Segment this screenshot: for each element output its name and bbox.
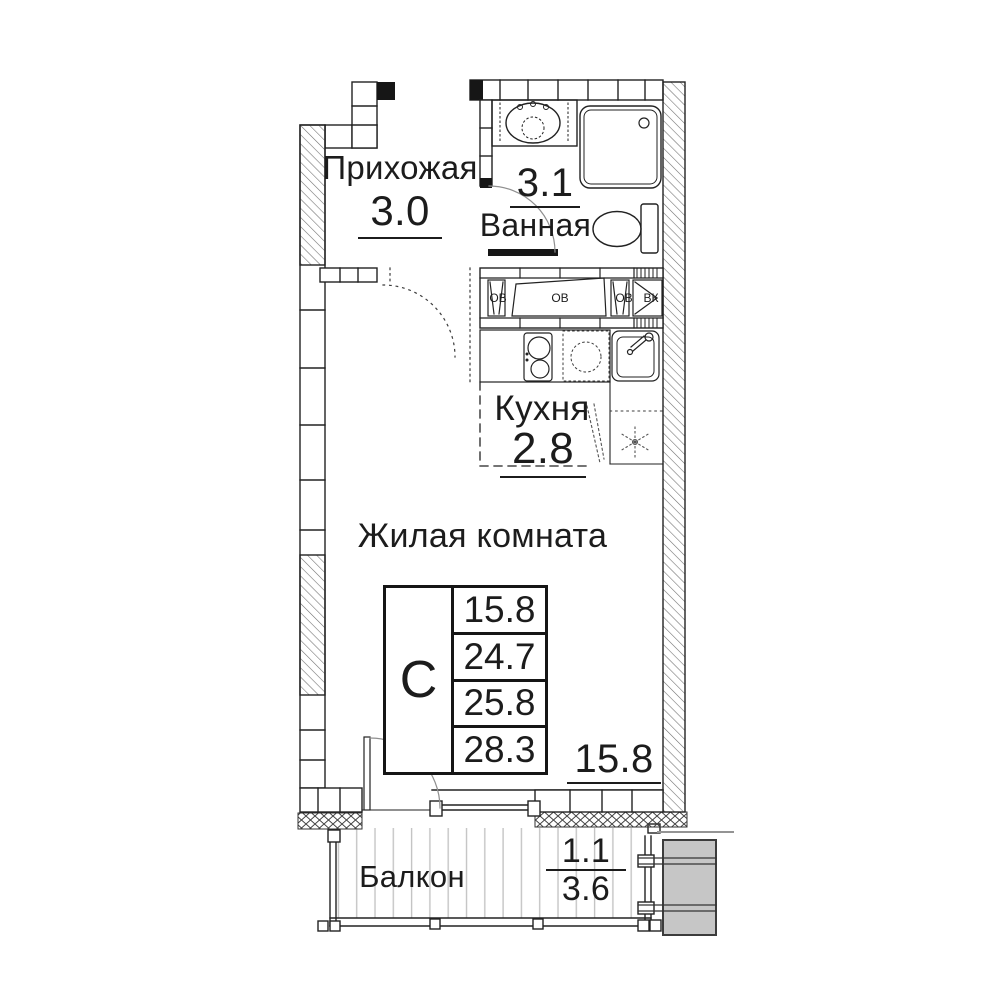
appliance-slot [563,331,609,381]
hallway-area-value: 3.0 [358,189,441,239]
apartment-summary-table: С 15.8 24.7 25.8 28.3 [383,585,548,775]
shower-tray [580,106,661,188]
summary-value-row: 25.8 [454,682,545,729]
kitchen-area: 2.8 [498,426,588,478]
railing-post [318,921,328,931]
door-leaf [364,737,370,810]
railing-post [638,920,649,931]
railing-post [533,919,543,929]
shaft-label-ov-2: ОВ [546,292,574,305]
railing-bracket [638,902,654,914]
neighbor-balcony-block [663,840,716,935]
hallway-opening [383,268,470,382]
summary-value-row: 28.3 [454,728,545,772]
stove [524,333,552,381]
balcony-window [430,801,540,816]
bathroom-area: 3.1 [500,162,590,208]
balcony-areas: 1.1 3.6 [546,833,626,907]
bathroom-area-value: 3.1 [510,162,581,208]
kitchen-area-value: 2.8 [500,426,586,478]
kitchen-label: Кухня [462,390,622,427]
wall-end-block [470,80,483,100]
floor-plan-page: Прихожая 3.0 3.1 Ванная Кухня 2.8 Жилая … [0,0,1000,1000]
bathroom-label: Ванная [438,209,633,243]
wall-insulation [298,812,687,829]
balcony-area-coefficient: 1.1 [546,833,626,869]
hallway-label: Прихожая [295,151,505,186]
kitchen-sink [612,331,659,381]
balcony-label: Балкон [342,861,482,894]
hallway-partition-stub [320,268,377,282]
hallway-area: 3.0 [348,189,452,239]
living-room-label: Жилая комната [355,518,610,554]
door-leaf [488,249,558,256]
kitchen-counter [480,330,610,382]
balcony-area-full: 3.6 [546,869,626,907]
shaft-label-vk: ВК [638,292,664,305]
summary-value-row: 15.8 [454,588,545,635]
apartment-areas-column: 15.8 24.7 25.8 28.3 [454,588,545,772]
living-room-area: 15.8 [564,738,664,784]
bathroom-vanity-sink [492,100,577,146]
railing-post [650,920,661,931]
opening-swing-dotted [383,285,455,357]
railing-bracket [638,855,654,867]
drying-symbol [620,425,650,459]
railing-post [430,919,440,929]
wall-end-block [377,82,395,100]
railing-post [328,830,340,842]
floor-plan-drawing [0,0,1000,1000]
railing-post [330,921,340,931]
living-room-area-value: 15.8 [567,738,660,784]
shaft-label-ov-3: ОВ [611,292,637,305]
shaft-label-ov-1: ОВ [486,292,510,305]
summary-value-row: 24.7 [454,635,545,682]
apartment-type-cell: С [386,588,454,772]
